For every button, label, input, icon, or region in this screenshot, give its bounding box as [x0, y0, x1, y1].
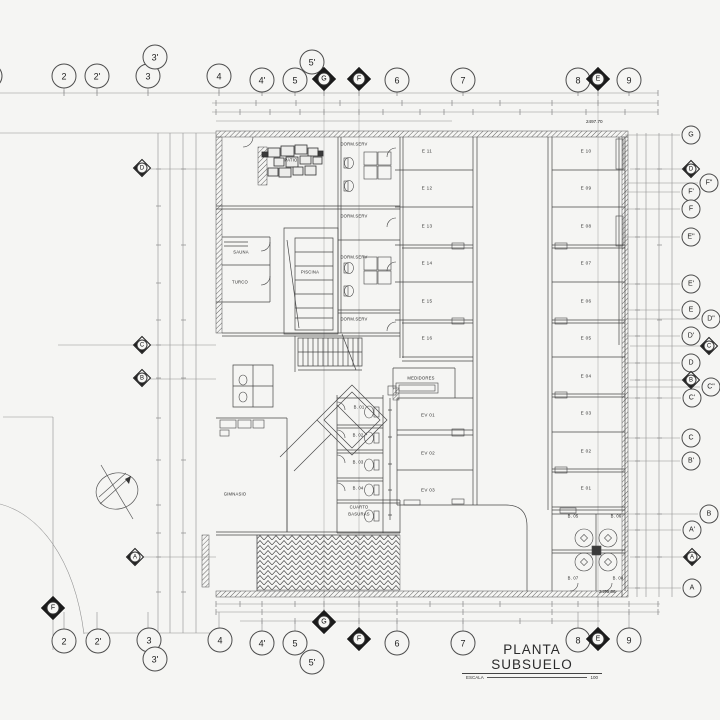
scale-bar: ESCALA 100: [462, 675, 602, 680]
parking-label: E 15: [422, 299, 433, 304]
room-label: CUARTO: [350, 505, 369, 510]
grid-bubble-G: G: [682, 126, 701, 145]
parking-label: E 09: [581, 186, 592, 191]
grid-bubble-B: B: [685, 374, 698, 387]
grid-bubble-2': 2': [85, 64, 110, 89]
room-label: B. 08: [613, 576, 624, 581]
parking-label: E 08: [581, 224, 592, 229]
grid-bubble-D: D: [136, 162, 149, 175]
grid-bubble-E: E: [590, 71, 607, 88]
parking-label: E 04: [581, 374, 592, 379]
grid-bubble-label: C: [704, 341, 715, 352]
scale-label: ESCALA: [466, 675, 484, 680]
grid-bubble-9: 9: [617, 628, 642, 653]
floorplan-sheet: 2497.70 2495.06 PLANTA SUBSUELO ESCALA 1…: [0, 0, 720, 720]
grid-bubble-4': 4': [250, 68, 275, 93]
grid-bubble-E: E: [682, 301, 701, 320]
parking-label: E 01: [581, 486, 592, 491]
grid-bubble-label: F: [47, 602, 60, 615]
grid-bubble-A: A: [129, 551, 142, 564]
grid-bubble-5': 5': [300, 650, 325, 675]
grid-bubble-E": E": [682, 228, 701, 247]
grid-bubble-C": C": [702, 378, 720, 397]
elevation-top-right: 2497.70: [586, 119, 603, 124]
scale-value: 100: [590, 675, 598, 680]
grid-bubble-label: C: [137, 340, 148, 351]
room-label: PISCINA: [301, 270, 319, 275]
room-label: B. 07: [568, 576, 579, 581]
parking-label: EV 02: [421, 451, 435, 456]
parking-label: E 10: [581, 149, 592, 154]
parking-label: E 12: [422, 186, 433, 191]
room-label: B. 01: [354, 405, 365, 410]
grid-bubble-C: C: [703, 340, 716, 353]
parking-label: E 05: [581, 336, 592, 341]
grid-bubble-D': D': [682, 327, 701, 346]
room-label: DORM.SERV: [340, 214, 367, 219]
grid-bubble-C': C': [683, 389, 702, 408]
parking-label: EV 01: [421, 413, 435, 418]
room-label: B. 03: [353, 460, 364, 465]
grid-bubble-2: 2: [52, 64, 77, 89]
grid-bubble-B': B': [682, 452, 701, 471]
grid-bubble-6: 6: [385, 68, 410, 93]
grid-bubble-4: 4: [208, 628, 233, 653]
parking-label: E 06: [581, 299, 592, 304]
grid-bubble-label: E: [592, 73, 605, 86]
grid-bubble-D": D": [702, 310, 720, 329]
grid-bubble-label: E: [592, 633, 605, 646]
grid-bubble-9: 9: [617, 68, 642, 93]
grid-bubble-F": F": [700, 174, 719, 193]
grid-bubble-B: B: [700, 505, 719, 524]
grid-bubble-A': A': [683, 521, 702, 540]
grid-bubble-label: G: [318, 616, 331, 629]
grid-bubble-label: B: [686, 375, 697, 386]
grid-bubble-4': 4': [250, 631, 275, 656]
grid-bubble-G: G: [316, 614, 333, 631]
grid-bubble-E: E: [590, 631, 607, 648]
grid-bubble-F: F: [351, 631, 368, 648]
room-label: B. 04: [353, 486, 364, 491]
room-label: DORM.SERV: [340, 317, 367, 322]
parking-label: E 02: [581, 449, 592, 454]
parking-label: E 14: [422, 261, 433, 266]
grid-bubble-2: 2: [52, 629, 77, 654]
parking-label: E 11: [422, 149, 432, 154]
grid-bubble-label: A: [130, 552, 141, 563]
grid-bubble-3': 3': [143, 647, 168, 672]
room-label: B. 06: [611, 514, 622, 519]
grid-bubble-2': 2': [86, 629, 111, 654]
room-label: PATIO: [285, 158, 298, 163]
parking-label: E 07: [581, 261, 592, 266]
grid-bubble-blank: [0, 64, 3, 89]
room-label: B. 02: [353, 433, 364, 438]
room-label: DORM.SERV: [340, 142, 367, 147]
grid-bubble-A: A: [686, 551, 699, 564]
grid-bubble-7: 7: [451, 631, 476, 656]
parking-label: E 16: [422, 336, 433, 341]
parking-label: EV 03: [421, 488, 435, 493]
room-label: MEDIDORES: [407, 376, 434, 381]
grid-bubble-D: D: [682, 354, 701, 373]
room-label: BASURAS: [348, 512, 369, 517]
grid-bubble-F: F: [351, 71, 368, 88]
grid-bubble-F: F: [45, 600, 62, 617]
parking-label: E 03: [581, 411, 592, 416]
grid-bubble-D: D: [685, 163, 698, 176]
elevation-bottom-right: 2495.06: [599, 589, 616, 594]
grid-bubble-label: G: [318, 73, 331, 86]
scale-line: [487, 677, 588, 678]
room-label: SAUNA: [233, 250, 248, 255]
grid-bubble-label: F: [353, 633, 366, 646]
grid-bubble-E': E': [682, 275, 701, 294]
annotation-layer: 2497.70 2495.06 PLANTA SUBSUELO ESCALA 1…: [0, 0, 720, 720]
grid-bubble-F: F: [682, 200, 701, 219]
room-label: GIMNASIO: [224, 492, 247, 497]
grid-bubble-C: C: [682, 429, 701, 448]
grid-bubble-6: 6: [385, 631, 410, 656]
grid-bubble-4: 4: [207, 64, 232, 89]
grid-bubble-3': 3': [143, 45, 168, 70]
grid-bubble-label: D: [137, 163, 148, 174]
grid-bubble-label: A: [687, 552, 698, 563]
parking-label: E 13: [422, 224, 433, 229]
room-label: TURCO: [232, 280, 248, 285]
room-label: B. 05: [568, 514, 579, 519]
grid-bubble-B: B: [136, 372, 149, 385]
grid-bubble-label: B: [137, 373, 148, 384]
grid-bubble-C: C: [136, 339, 149, 352]
grid-bubble-label: D: [686, 164, 697, 175]
room-label: DORM.SERV: [340, 255, 367, 260]
grid-bubble-7: 7: [451, 68, 476, 93]
grid-bubble-A: A: [683, 579, 702, 598]
grid-bubble-label: F: [353, 73, 366, 86]
grid-bubble-G: G: [316, 71, 333, 88]
